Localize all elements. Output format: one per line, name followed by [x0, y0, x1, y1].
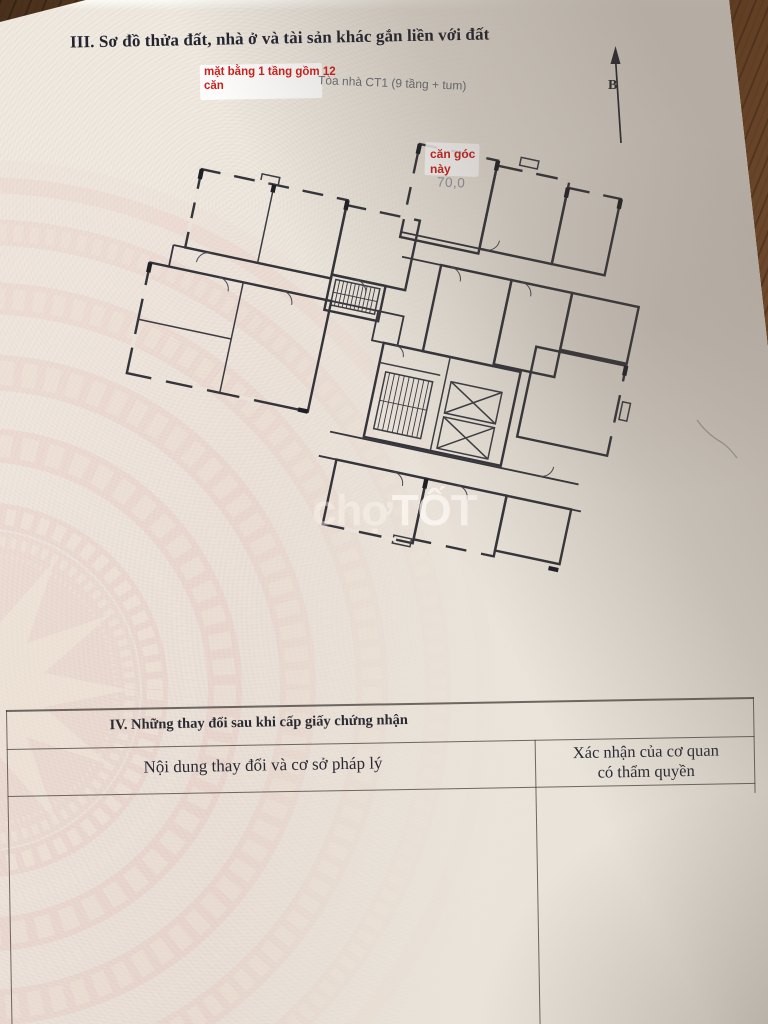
certificate-paper: III. Sơ đồ thửa đất, nhà ở và tài sản kh… — [0, 0, 768, 1024]
pencil-mark — [697, 420, 737, 458]
watermark-tot: TỐT — [392, 486, 477, 535]
north-arrow-icon — [611, 46, 622, 143]
north-label: B — [608, 78, 617, 94]
chotot-watermark: chợTỐT — [312, 486, 477, 536]
section4-col1-header: Nội dung thay đổi và cơ sở pháp lý — [7, 751, 519, 780]
watermark-cho: chợ — [312, 486, 392, 535]
section4-title: IV. Những thay đổi sau khi cấp giấy chứn… — [6, 710, 511, 736]
table-line-under-headers — [8, 783, 756, 797]
section4-col2-header: Xác nhận của cơ quan có thẩm quyền — [539, 740, 754, 784]
section4-table: IV. Những thay đổi sau khi cấp giấy chứn… — [6, 697, 764, 1024]
photo-of-certificate-page: III. Sơ đồ thửa đất, nhà ở và tài sản kh… — [0, 0, 768, 1024]
section4-col2-line2: có thẩm quyền — [539, 760, 753, 784]
